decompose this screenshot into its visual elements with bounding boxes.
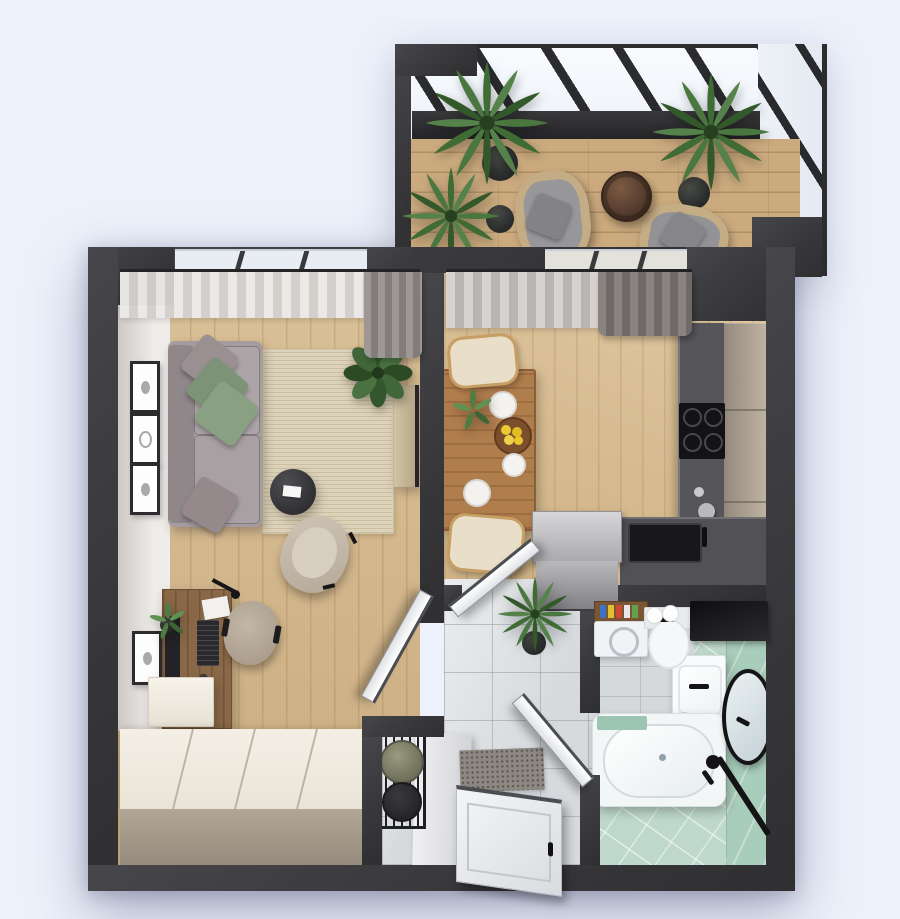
wardrobe-seam <box>296 729 318 809</box>
gas-cooktop <box>679 403 725 459</box>
kitchen-faucet <box>702 527 707 547</box>
toiletry-bottle <box>600 605 606 618</box>
table-plant <box>444 381 502 439</box>
living-gray-drape <box>364 272 422 358</box>
art-motif <box>143 652 152 665</box>
tub-basin <box>603 724 715 798</box>
wall-art-2 <box>130 413 160 465</box>
bath-dark-cabinet <box>690 601 768 641</box>
wall-bottom <box>88 865 795 891</box>
tub-drain <box>659 754 666 761</box>
cabinet-seam <box>724 409 766 411</box>
basket-dark <box>382 782 422 822</box>
door-handle <box>548 842 553 857</box>
armchair-cushion <box>284 520 344 585</box>
lemon <box>501 425 511 435</box>
lemon <box>514 436 523 445</box>
wall-hall-vertical <box>362 737 382 865</box>
teapot <box>502 453 526 477</box>
shower-head <box>706 755 720 769</box>
wall-art-1 <box>130 361 160 413</box>
papers <box>201 596 230 620</box>
basket-olive <box>380 740 424 784</box>
dinner-plate <box>463 479 491 507</box>
art-motif <box>141 483 150 496</box>
lemon <box>504 435 514 445</box>
basin-bowl <box>678 665 722 715</box>
cup <box>694 487 704 497</box>
tub-deck-mint <box>597 716 647 730</box>
wall-left <box>88 247 118 891</box>
wall-bath-left-lower <box>580 775 600 865</box>
basin-faucet <box>689 684 709 689</box>
table-tray <box>282 485 301 498</box>
paper-roll <box>662 605 679 622</box>
washing-machine <box>594 621 648 657</box>
kitchen-sink <box>628 523 702 563</box>
kitchen-island-top <box>532 511 622 563</box>
toiletry-bottle <box>608 605 614 618</box>
toiletry-bottle <box>624 605 630 618</box>
toiletry-bottle <box>632 605 638 618</box>
wardrobe-seam <box>172 729 194 809</box>
palm-plant-right <box>650 71 772 193</box>
coffee-table <box>270 469 316 515</box>
art-motif <box>139 431 152 448</box>
burner <box>704 433 723 452</box>
cabinet-seam <box>724 501 766 503</box>
washer-door <box>609 627 639 657</box>
doormat <box>459 748 544 793</box>
wall-art-3 <box>130 463 160 515</box>
entry-door <box>456 785 562 897</box>
desk-plant <box>142 595 194 647</box>
burner <box>683 433 702 452</box>
door-panel-line <box>467 803 551 883</box>
burner <box>683 408 702 427</box>
burner <box>704 408 723 427</box>
floating-cabinet <box>148 677 214 727</box>
toilet <box>644 607 690 669</box>
toiletry-bottle <box>616 605 622 618</box>
floorplan-render <box>0 19 900 919</box>
kitchen-gray-drape <box>598 272 692 336</box>
paper-roll <box>646 607 663 624</box>
desk-lamp-head <box>231 590 240 599</box>
sofa <box>168 341 262 527</box>
art-motif <box>141 381 150 394</box>
hallway-palm <box>496 575 574 653</box>
wall-hall-stub <box>362 716 444 737</box>
toilet-bowl <box>648 619 690 669</box>
wardrobe-seam <box>234 729 256 809</box>
wardrobe-top <box>120 729 368 809</box>
basket-stand <box>376 727 426 829</box>
wardrobe-front <box>120 809 368 865</box>
wall-partition-living-kitchen <box>420 273 444 623</box>
keyboard <box>197 620 219 666</box>
balcony-side-table <box>601 171 652 222</box>
wall-right <box>766 247 795 891</box>
